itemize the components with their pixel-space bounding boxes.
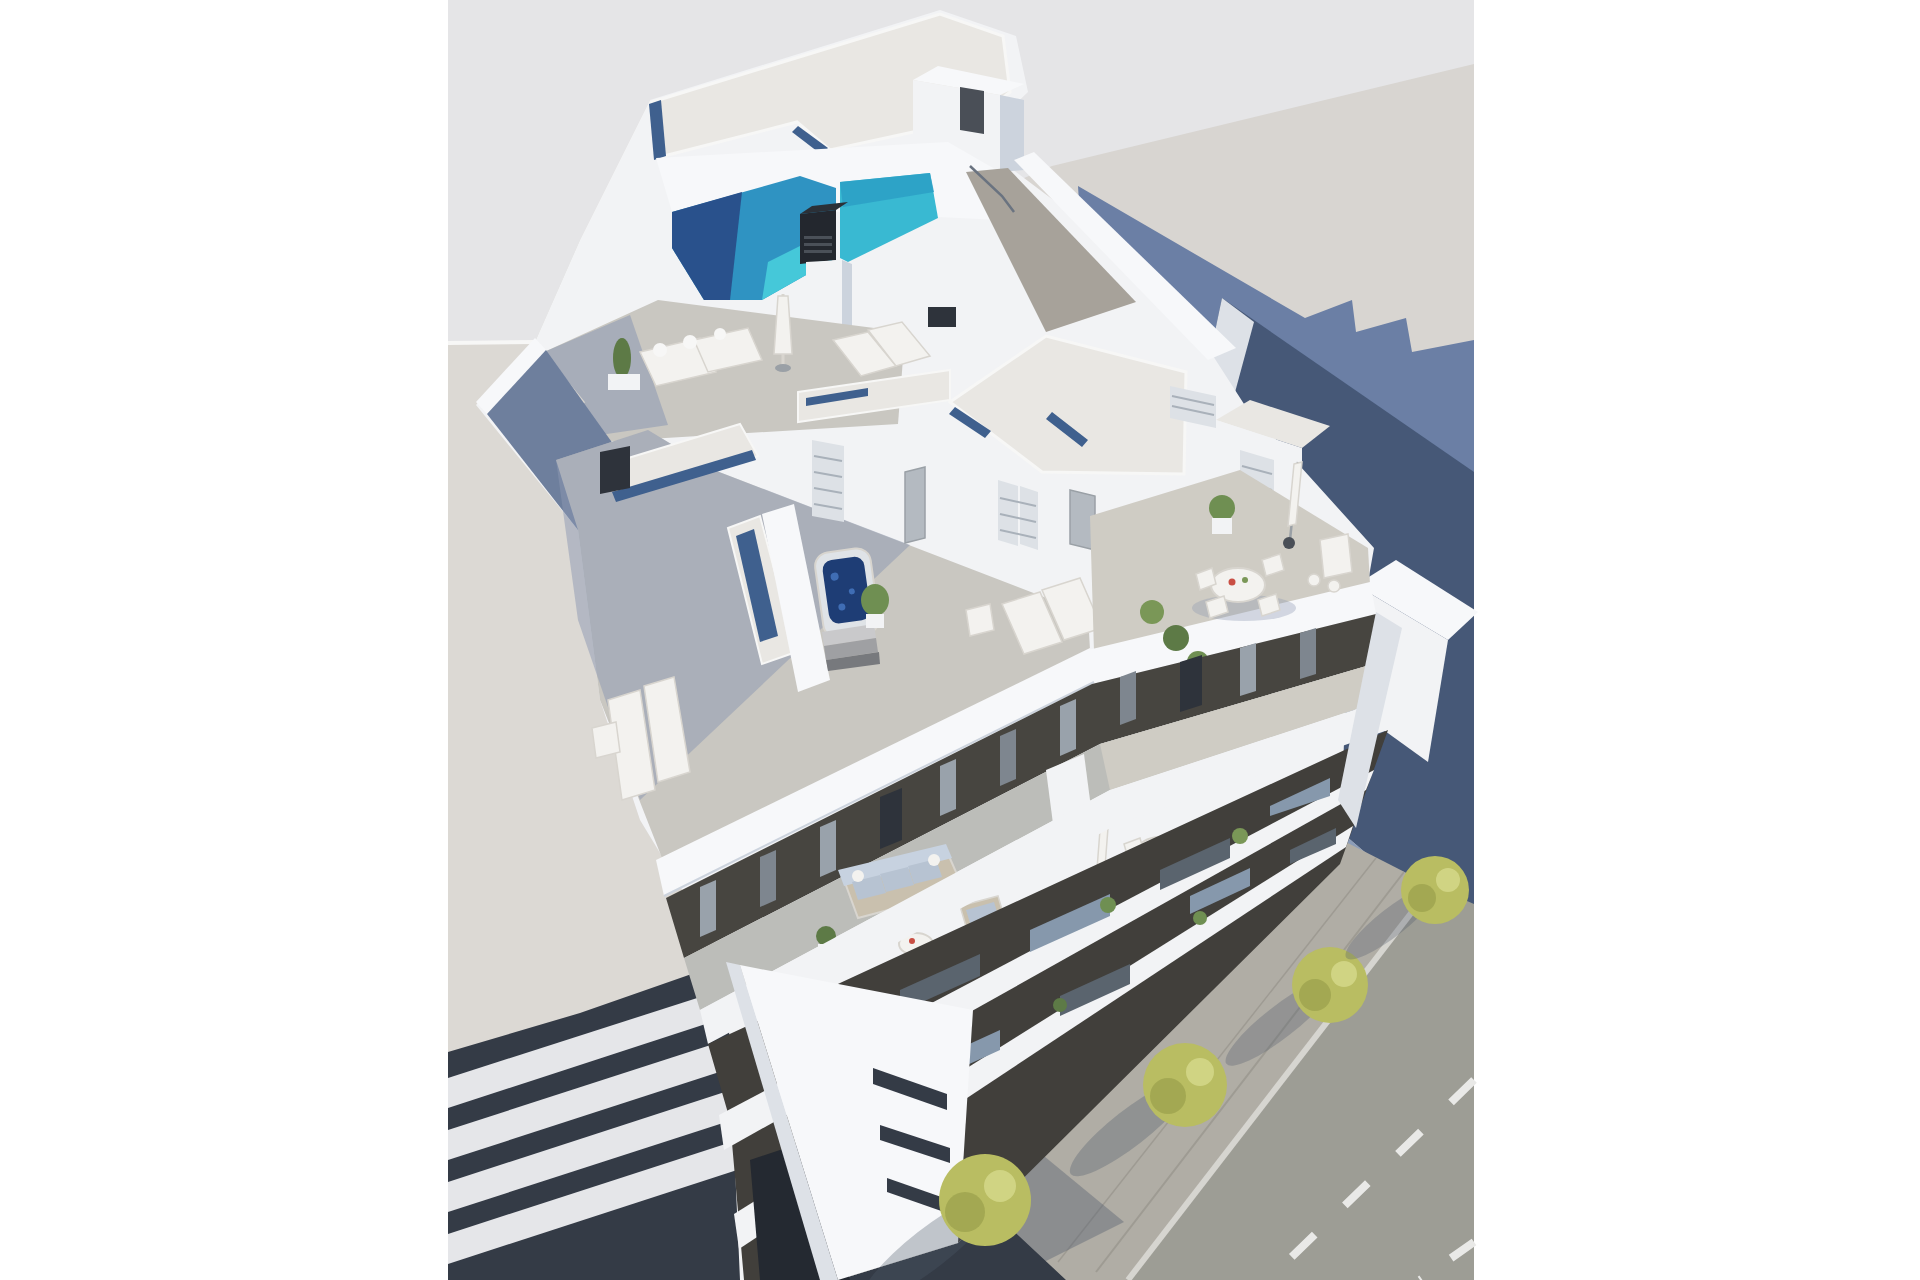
curtain-strip bbox=[820, 820, 836, 877]
parasol-base bbox=[1283, 537, 1295, 549]
tree-canopy-light bbox=[1331, 961, 1357, 987]
glass-door-dark bbox=[880, 788, 902, 849]
left-neighbor-roof-edge bbox=[448, 342, 535, 343]
dark-window bbox=[600, 446, 630, 494]
render-canvas bbox=[0, 0, 1920, 1280]
side-table bbox=[966, 604, 994, 636]
louver-shutter-panel bbox=[812, 440, 844, 522]
daybed-pillow bbox=[653, 343, 667, 357]
bar-stool bbox=[1308, 574, 1320, 586]
plant-pot bbox=[1212, 518, 1232, 534]
bar-stool bbox=[1328, 580, 1340, 592]
tree-canopy-dark bbox=[1150, 1078, 1186, 1114]
tree-canopy-dark bbox=[945, 1192, 985, 1232]
parasol-base bbox=[775, 364, 791, 372]
tree-canopy-light bbox=[1436, 868, 1460, 892]
side-table bbox=[592, 722, 620, 758]
tree-canopy-dark bbox=[1408, 884, 1436, 912]
balcony-shrub bbox=[1193, 911, 1207, 925]
terrace-plant bbox=[1163, 625, 1189, 651]
glass-door-dark bbox=[1180, 655, 1202, 712]
louver-shutter-panel bbox=[998, 480, 1018, 546]
curtain-strip bbox=[760, 850, 776, 907]
tree-canopy-light bbox=[1186, 1058, 1214, 1086]
closed-parasol bbox=[774, 296, 792, 354]
sofa-pillow bbox=[852, 870, 864, 882]
balcony-shrub bbox=[1232, 828, 1248, 844]
balcony-shrub bbox=[1100, 897, 1116, 913]
terrace-door bbox=[905, 467, 925, 543]
dark-window bbox=[928, 307, 956, 327]
sofa-pillow bbox=[928, 854, 940, 866]
chimney-louver bbox=[804, 250, 832, 253]
stair-bulkhead-door bbox=[960, 87, 984, 134]
curtain-strip bbox=[1240, 643, 1256, 696]
aerial-building-render bbox=[0, 0, 1920, 1280]
cypress-plant bbox=[613, 338, 631, 378]
table-item-red bbox=[909, 938, 915, 944]
potted-tree bbox=[861, 584, 889, 616]
curtain-strip bbox=[1300, 628, 1316, 679]
potted-tree bbox=[1209, 495, 1235, 521]
chimney-louver bbox=[804, 236, 832, 239]
daybed-pillow bbox=[683, 335, 697, 349]
terrace-plant bbox=[1140, 600, 1164, 624]
curtain-strip bbox=[940, 759, 956, 816]
daybed-pillow bbox=[714, 328, 726, 340]
tree-canopy-dark bbox=[1299, 979, 1331, 1011]
table-item-red bbox=[1229, 579, 1236, 586]
table-item-green bbox=[1242, 577, 1248, 583]
louver-shutter-panel bbox=[1020, 486, 1038, 550]
plant-pot bbox=[866, 614, 884, 628]
curtain-strip bbox=[1000, 729, 1016, 786]
planter-box bbox=[608, 374, 640, 390]
tree-canopy-light bbox=[984, 1170, 1016, 1202]
curtain-strip bbox=[1060, 699, 1076, 756]
curtain-strip bbox=[1120, 671, 1136, 725]
chimney-louver bbox=[804, 243, 832, 246]
curtain-strip bbox=[700, 880, 716, 937]
balcony-shrub bbox=[1053, 998, 1067, 1012]
bar-table bbox=[1320, 534, 1352, 578]
